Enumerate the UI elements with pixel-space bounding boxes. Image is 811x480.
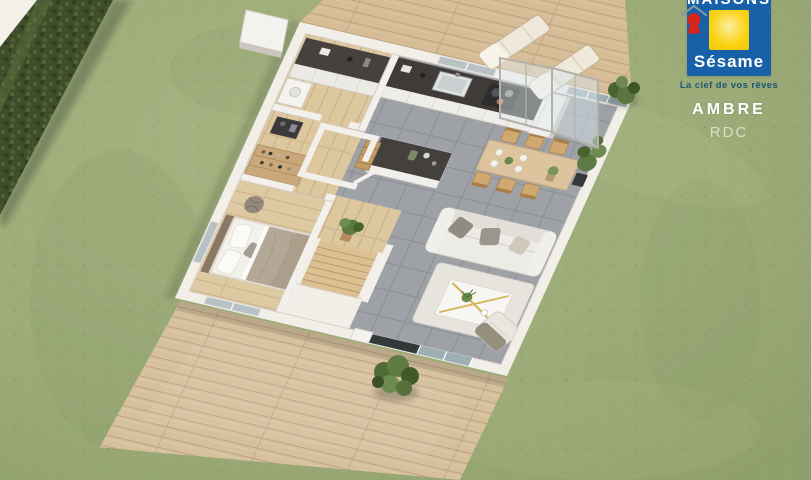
brand-name-bottom: Sésame — [687, 52, 771, 71]
plan-name: AMBRE — [674, 101, 784, 119]
keyhole-icon — [709, 10, 749, 50]
brand-logo: MAISONS Sésame — [687, 0, 771, 76]
floorplan-render: MAISONS Sésame La clef de vos rêves AMBR… — [0, 0, 811, 480]
floor-label: RDC — [674, 124, 784, 141]
brand-block: MAISONS Sésame La clef de vos rêves AMBR… — [674, 0, 784, 141]
brand-tagline: La clef de vos rêves — [674, 80, 784, 91]
